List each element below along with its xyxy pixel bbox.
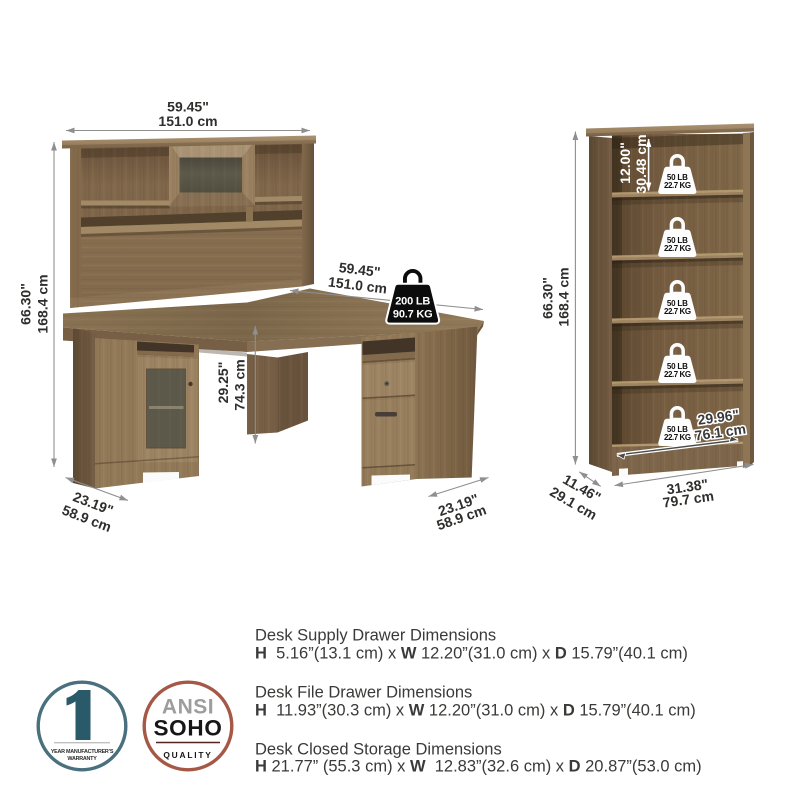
svg-text:151.0 cm: 151.0 cm xyxy=(158,113,217,129)
svg-text:Desk Supply Drawer Dimensions: Desk Supply Drawer Dimensions xyxy=(255,627,496,645)
svg-text:H 21.77” (55.3 cm) x W 12.83”: H 21.77” (55.3 cm) x W 12.83”(32.6 cm) x… xyxy=(255,758,702,776)
svg-text:H 11.93”(30.3 cm) x W 12.20”(: H 11.93”(30.3 cm) x W 12.20”(31.0 cm) x … xyxy=(255,702,696,720)
svg-text:168.4 cm: 168.4 cm xyxy=(556,267,572,326)
svg-text:90.7 KG: 90.7 KG xyxy=(393,309,433,321)
svg-text:29.25": 29.25" xyxy=(215,362,231,404)
svg-text:Desk File Drawer Dimensions: Desk File Drawer Dimensions xyxy=(255,684,472,702)
svg-text:YEAR MANUFACTURER’S: YEAR MANUFACTURER’S xyxy=(51,749,114,755)
svg-text:WARRANTY: WARRANTY xyxy=(67,756,97,762)
svg-text:QUALITY: QUALITY xyxy=(163,750,212,760)
svg-text:22.7 KG: 22.7 KG xyxy=(664,181,691,190)
svg-text:168.4 cm: 168.4 cm xyxy=(35,274,51,333)
svg-text:66.30": 66.30" xyxy=(18,283,34,325)
svg-text:30.48 cm: 30.48 cm xyxy=(633,134,649,193)
svg-text:12.00": 12.00" xyxy=(617,142,633,184)
svg-text:H 5.16”(13.1 cm) x W 12.20”(3: H 5.16”(13.1 cm) x W 12.20”(31.0 cm) x D… xyxy=(255,645,688,663)
svg-text:SOHO: SOHO xyxy=(153,716,222,741)
svg-text:74.3 cm: 74.3 cm xyxy=(232,359,248,410)
svg-text:Desk Closed Storage Dimensions: Desk Closed Storage Dimensions xyxy=(255,741,502,759)
svg-text:66.30": 66.30" xyxy=(540,277,556,319)
svg-text:200 LB: 200 LB xyxy=(395,296,430,308)
